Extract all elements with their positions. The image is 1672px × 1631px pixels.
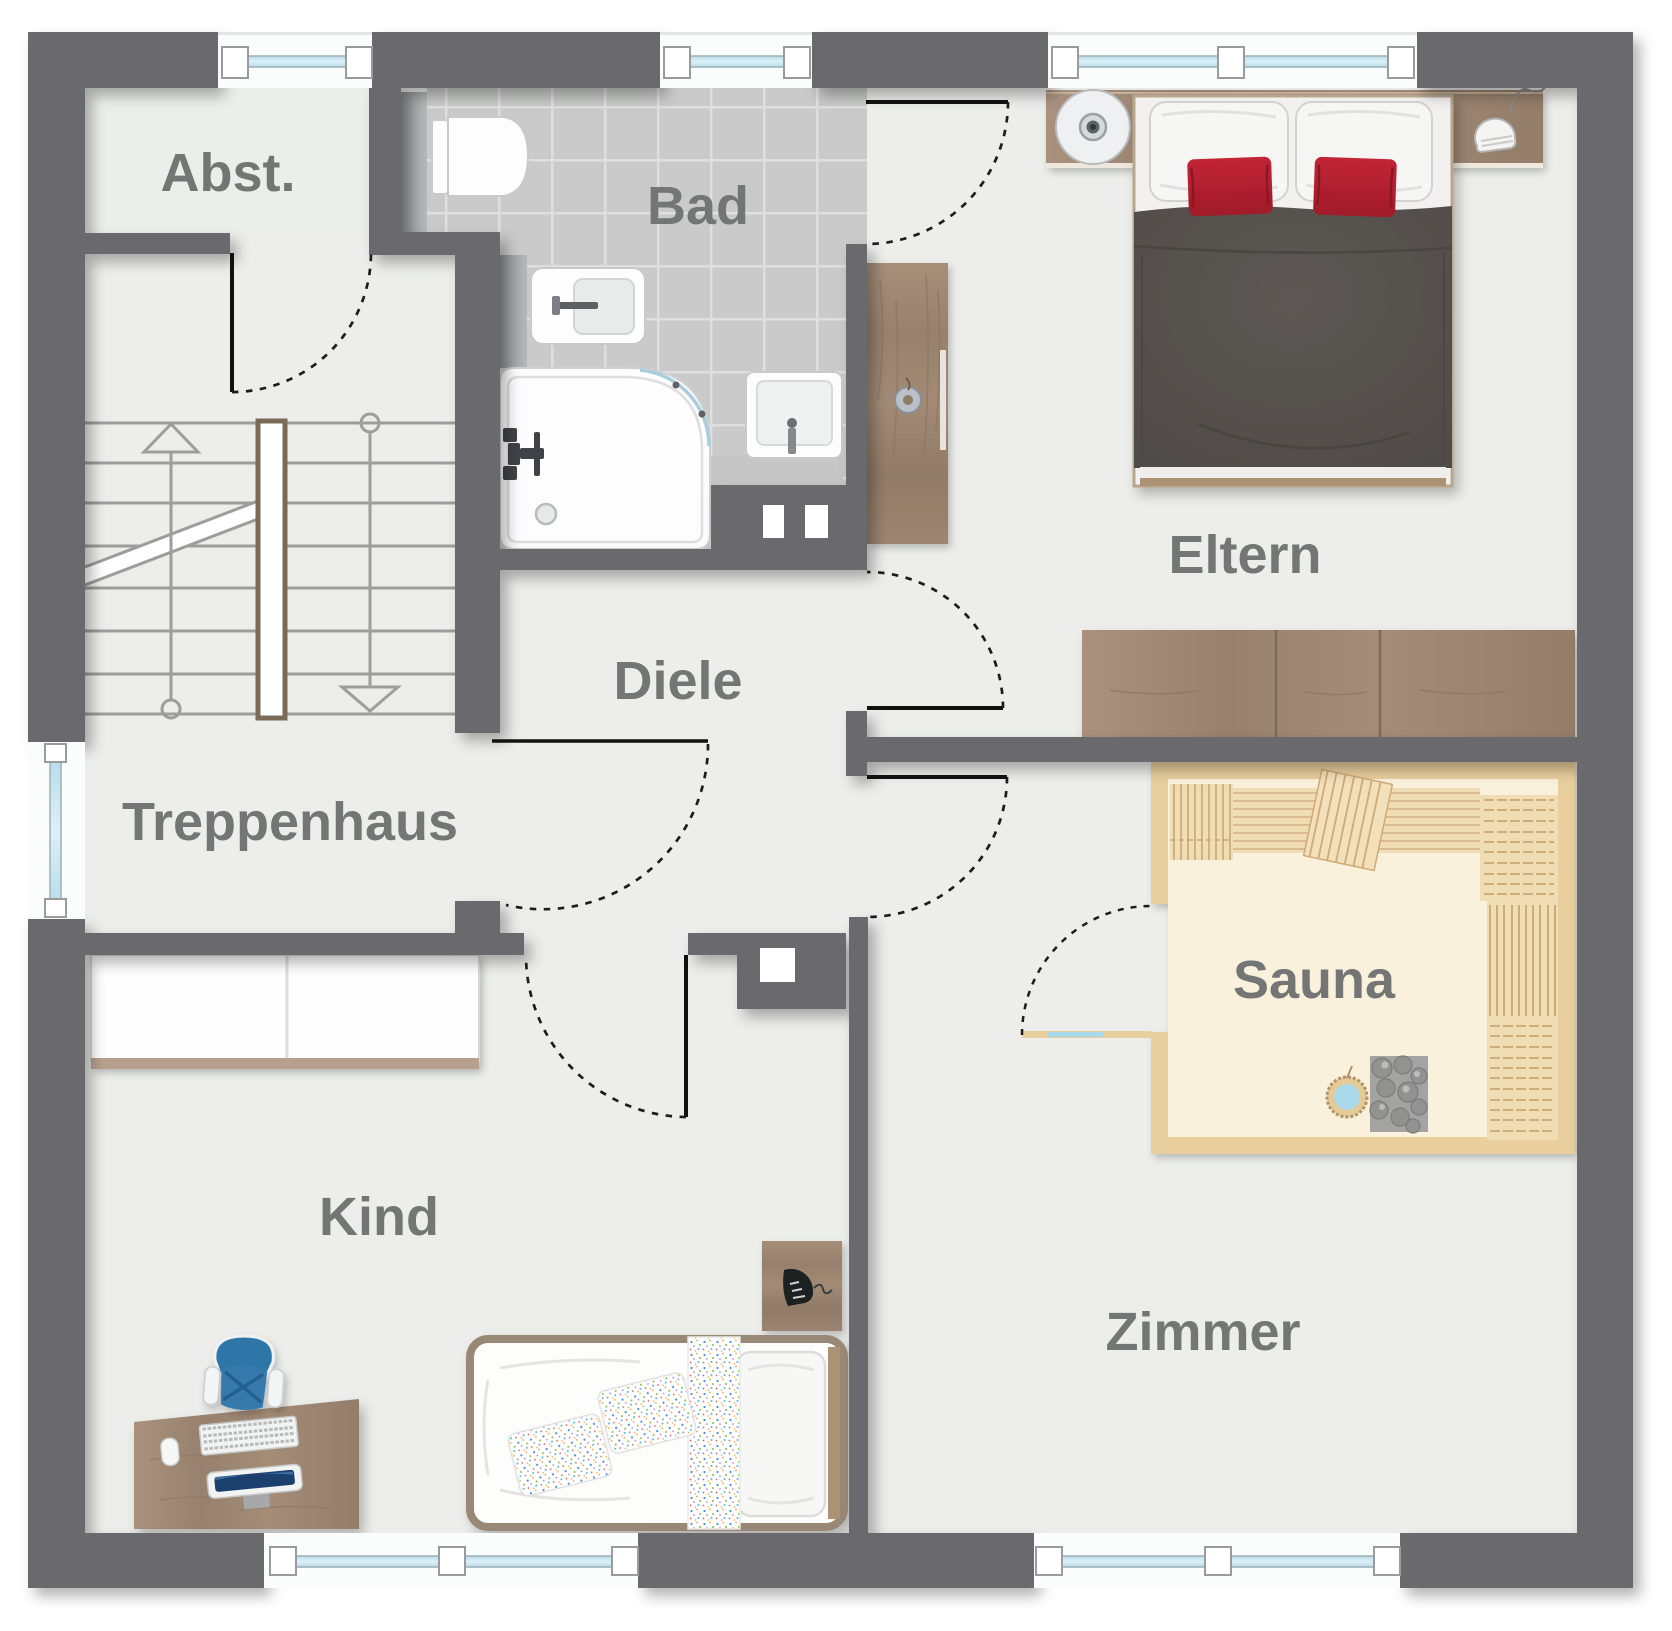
svg-text:Bad: Bad — [647, 176, 749, 236]
svg-text:Diele: Diele — [613, 651, 742, 711]
svg-text:Zimmer: Zimmer — [1105, 1302, 1300, 1362]
svg-text:Sauna: Sauna — [1233, 950, 1396, 1010]
svg-text:Kind: Kind — [319, 1187, 439, 1247]
svg-text:Abst.: Abst. — [161, 143, 296, 203]
svg-text:Eltern: Eltern — [1168, 525, 1321, 585]
svg-text:Treppenhaus: Treppenhaus — [122, 792, 458, 852]
